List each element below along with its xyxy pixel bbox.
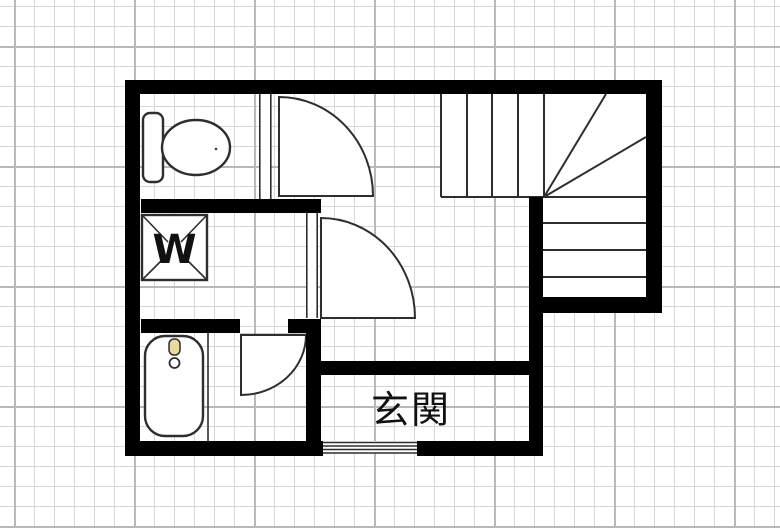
wall-top	[125, 80, 662, 94]
stair-lower-run	[543, 197, 646, 298]
wall-bath-top	[141, 319, 240, 333]
floor-plan: W 玄関	[0, 0, 780, 528]
wall-entrance-top	[321, 361, 532, 375]
wall-right	[646, 80, 662, 313]
wall-bottom-entrance	[417, 441, 543, 456]
entrance-sliding-door-icon	[323, 441, 417, 453]
floor-plan-drawing: W 玄関	[0, 0, 780, 528]
wall-stair-stub	[529, 197, 543, 456]
wall-left	[125, 80, 140, 456]
toilet-partition	[259, 94, 271, 200]
washer-label: W	[152, 227, 196, 273]
wall-stair-bottom	[529, 297, 662, 313]
door-swing-icon	[241, 335, 306, 395]
wall-toilet-bottom	[141, 199, 321, 213]
toilet-tank	[143, 113, 163, 182]
washing-machine-icon: W	[142, 215, 207, 280]
door-swing-icon	[279, 97, 373, 196]
bathtub-drain	[170, 358, 180, 368]
hall-partition	[306, 213, 318, 319]
entrance-label: 玄関	[371, 388, 451, 432]
staircase-icon	[441, 94, 646, 298]
door-swing-icon	[321, 218, 415, 318]
wall-bottom-left	[125, 441, 323, 456]
toilet-bowl	[162, 120, 230, 175]
toilet-flush-dot	[215, 148, 218, 151]
toilet-icon	[143, 113, 230, 182]
bathtub-icon	[145, 336, 203, 436]
wall-entrance-left	[306, 319, 321, 456]
bathtub-faucet	[169, 339, 180, 355]
